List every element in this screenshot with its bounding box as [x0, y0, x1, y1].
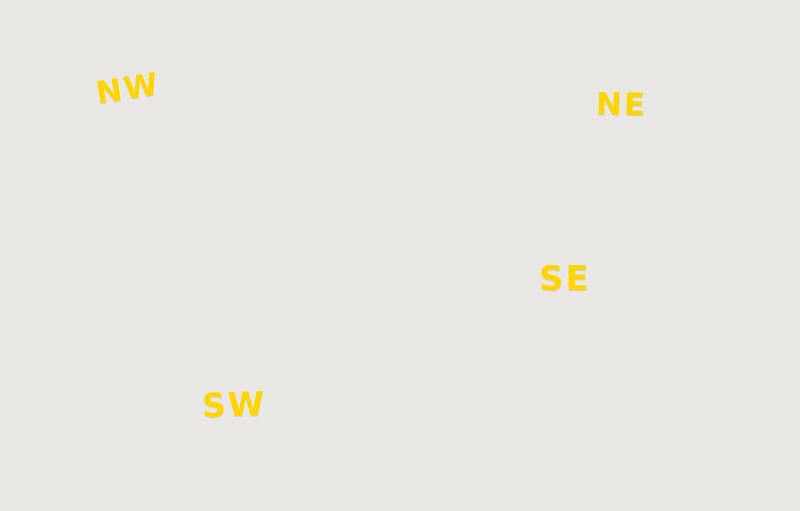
quadrant-label-se: SE	[539, 262, 591, 296]
quadrant-label-ne: NE	[596, 90, 648, 122]
campus-map[interactable]: NW NE SE SW	[0, 0, 800, 511]
quadrant-label-sw: SW	[201, 387, 266, 422]
